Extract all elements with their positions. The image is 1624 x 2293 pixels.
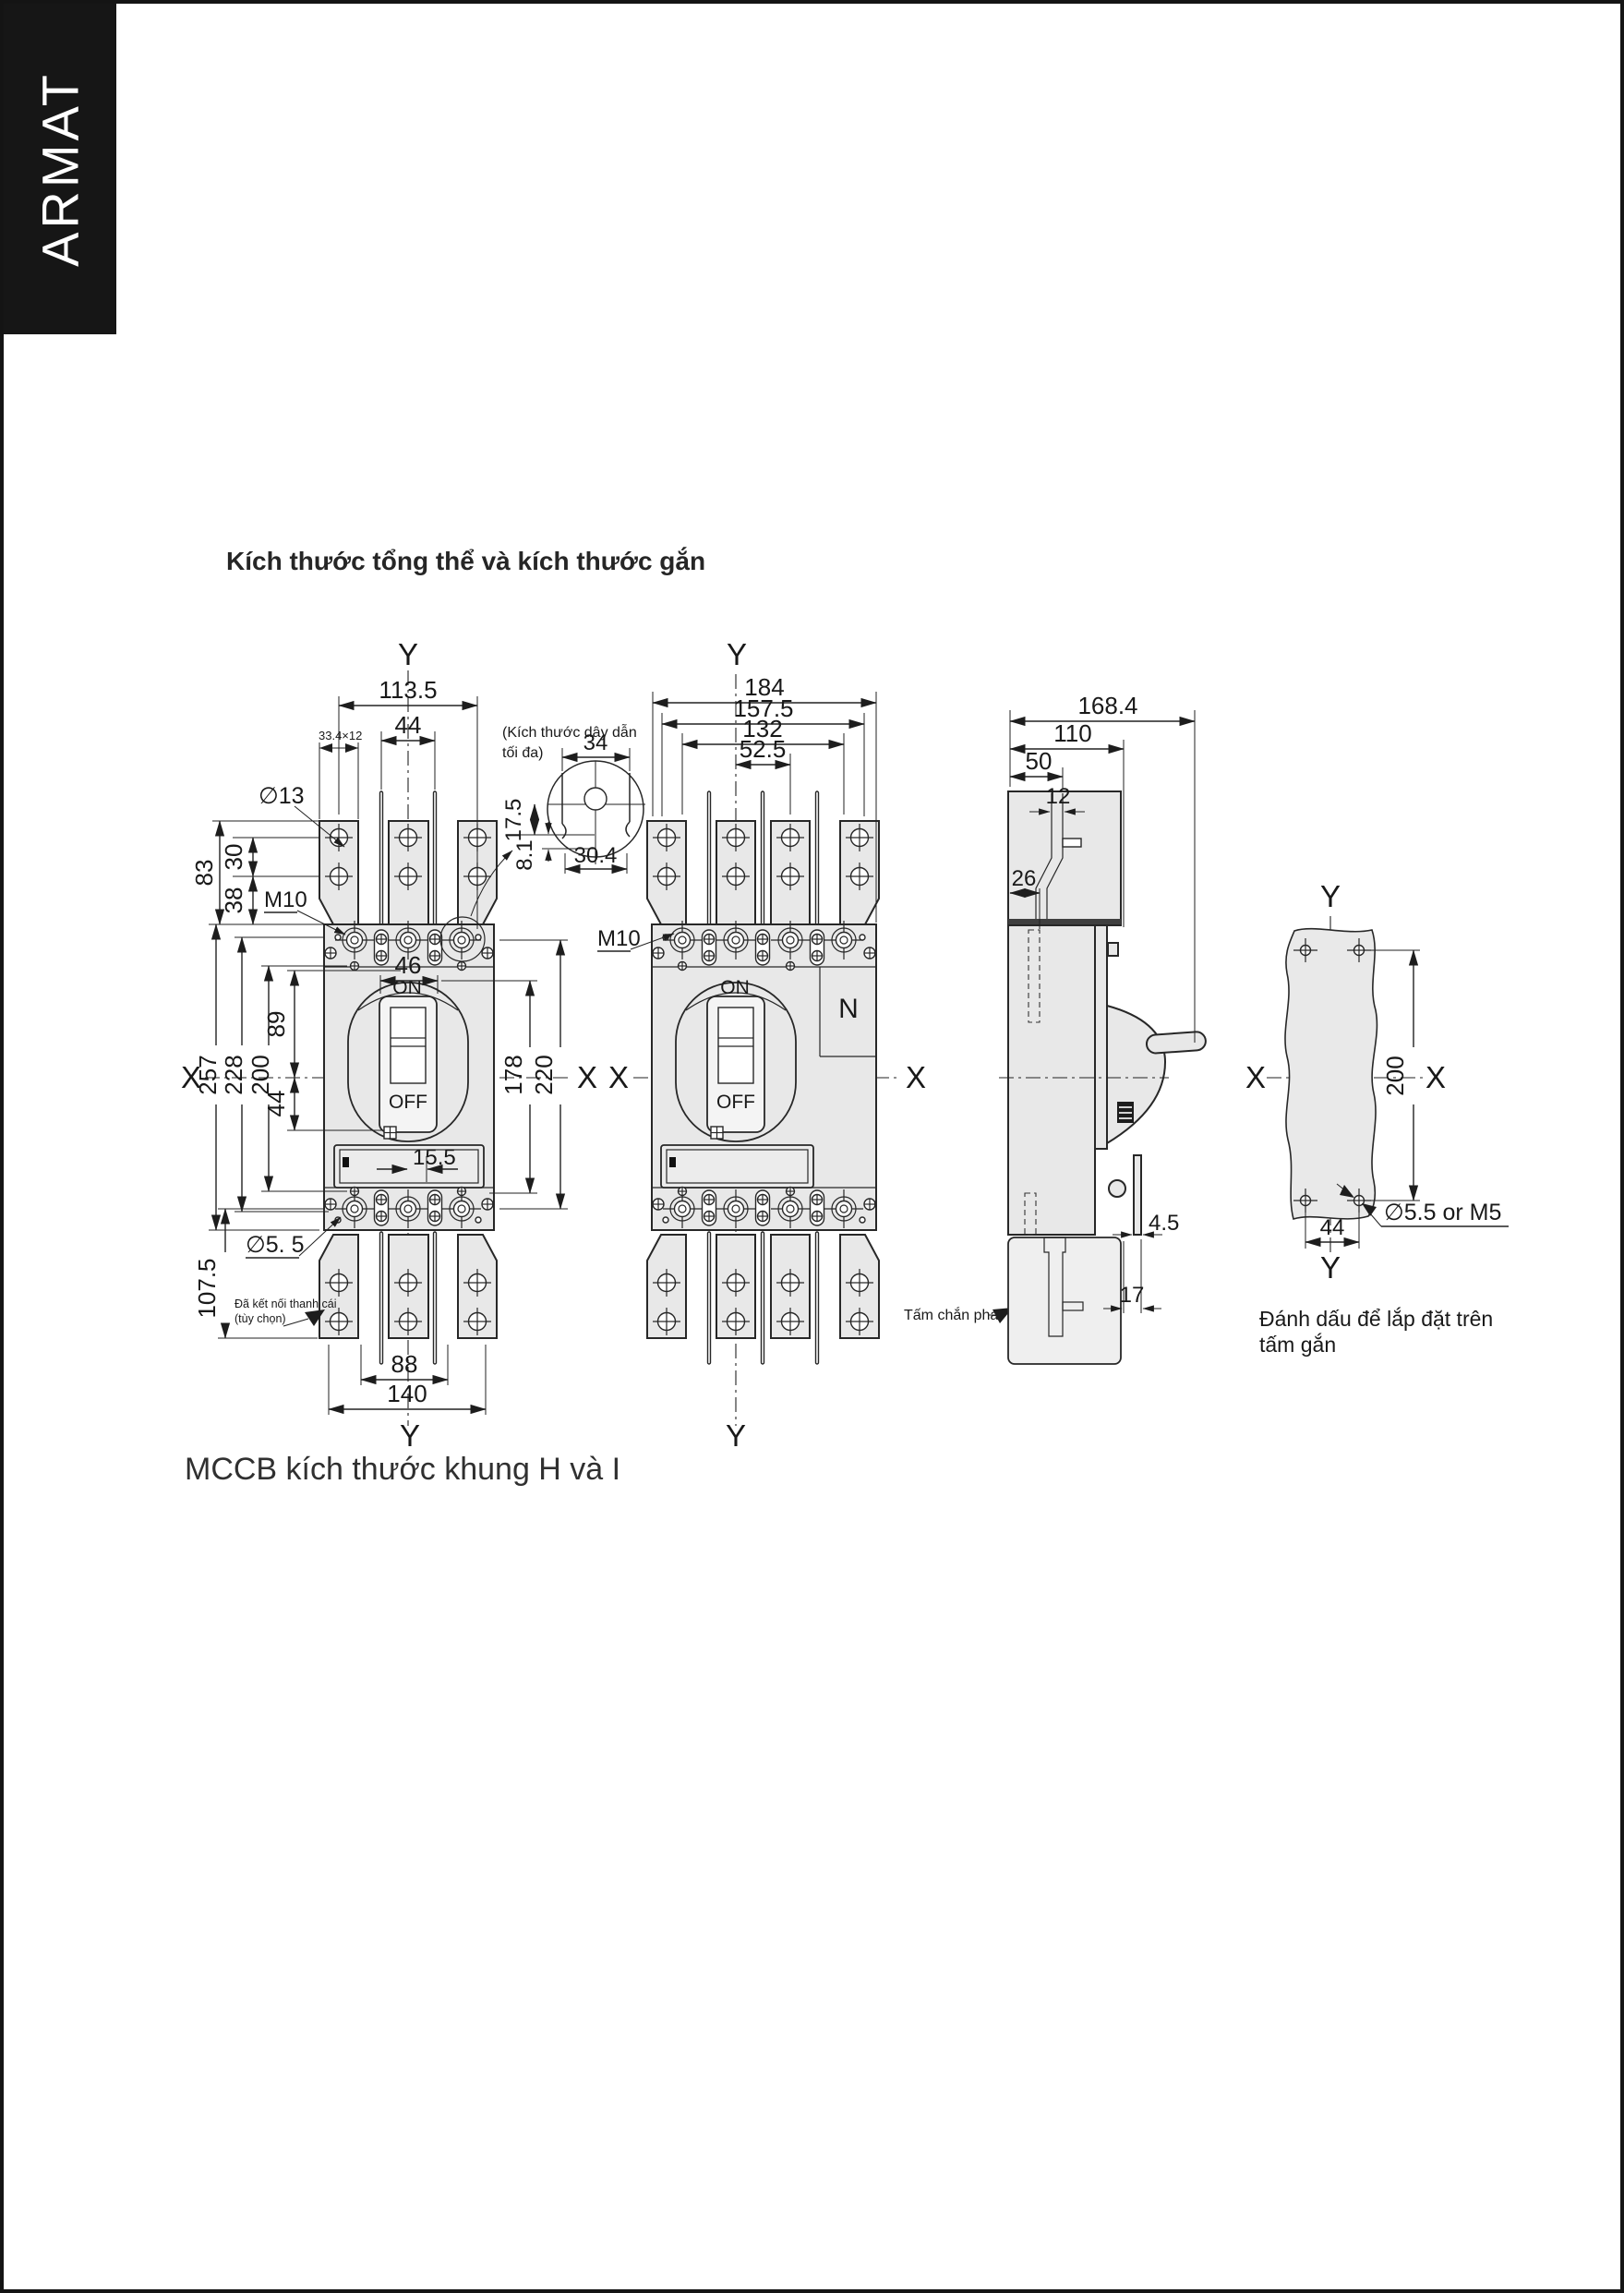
side-view: 168.4 110 50 12 26 4.5 17: [999, 692, 1207, 1364]
dim-plate-44: 44: [1320, 1215, 1345, 1240]
dim-178: 178: [499, 1055, 527, 1094]
dim-30-4: 30.4: [574, 843, 618, 868]
plate-hole-label: ∅5.5 or M5: [1384, 1200, 1501, 1225]
handle-side: [1146, 1032, 1206, 1054]
axis-x-left-4: X: [1245, 1060, 1266, 1094]
dim-plate-200: 200: [1381, 1056, 1409, 1095]
nameplate-window: [334, 1145, 484, 1188]
dim-52-5: 52.5: [740, 735, 787, 763]
dim-44-left: 44: [262, 1091, 290, 1117]
dim-107-5: 107.5: [193, 1258, 221, 1318]
neutral-label: N: [838, 994, 859, 1024]
nameplate-window-4p: [661, 1145, 813, 1188]
catalog-page: ARMAT Kích thước tổng thể và kích thước …: [0, 0, 1624, 2293]
dim-200: 200: [247, 1055, 274, 1094]
dim-17-5: 17.5: [501, 799, 526, 842]
dim-220: 220: [530, 1055, 558, 1094]
axis-x-left-1: X: [181, 1060, 201, 1094]
technical-drawing: ON OFF: [4, 4, 1624, 2293]
mounting-note-1: Đánh dấu để lắp đặt trên: [1259, 1307, 1493, 1331]
dim-168-4: 168.4: [1077, 692, 1137, 719]
axis-y-top-2: Y: [727, 637, 747, 671]
axis-y-top-4: Y: [1320, 879, 1341, 913]
phase-barrier-label: Tấm chắn pha: [904, 1306, 998, 1323]
dim-113-5: 113.5: [379, 676, 437, 704]
dim-8-1: 8.1: [512, 839, 537, 870]
axis-x-right-1: X: [577, 1060, 597, 1094]
axis-y-bottom-4: Y: [1320, 1250, 1341, 1285]
axis-x-right-4: X: [1426, 1060, 1446, 1094]
dim-dia13: ∅13: [259, 783, 305, 809]
axis-y-bottom-2: Y: [726, 1418, 746, 1453]
dim-89: 89: [262, 1011, 290, 1038]
dim-38: 38: [220, 887, 247, 914]
dim-slot: 33.4×12: [319, 729, 362, 742]
bottom-terminal-lugs: [319, 1235, 497, 1338]
dim-228: 228: [220, 1055, 247, 1094]
dim-12: 12: [1046, 784, 1071, 809]
dim-30: 30: [220, 844, 247, 871]
thread-label-left: M10: [264, 887, 307, 912]
conductor-detail-view: (Kích thước dây dẫn tối đa) 34 17.5 8.1 …: [501, 723, 645, 874]
dim-15-5: 15.5: [413, 1145, 456, 1170]
mounting-plate-view: 200 44 ∅5.5 or M5 Y Y X X Đánh dấu để lắ…: [1245, 879, 1509, 1357]
phase-barrier-plate: [1008, 1237, 1121, 1364]
axis-x-right-2: X: [906, 1060, 926, 1094]
dim-110: 110: [1053, 719, 1091, 747]
dim-dia5-5: ∅5. 5: [246, 1232, 304, 1258]
busbar-note-2: (tùy chọn): [235, 1312, 286, 1325]
conductor-note-1: (Kích thước dây dẫn: [502, 723, 637, 741]
conductor-note-2: tối đa): [502, 745, 543, 761]
dim-140: 140: [387, 1380, 427, 1407]
off-label: OFF: [389, 1092, 427, 1113]
top-terminal-lugs: [319, 821, 497, 924]
axis-x-left-2: X: [608, 1060, 629, 1094]
off-label-4p: OFF: [716, 1092, 755, 1113]
dim-26: 26: [1012, 866, 1037, 891]
toggle-dome-side: [1107, 1006, 1165, 1143]
axis-y-bottom-1: Y: [400, 1418, 420, 1453]
dim-50: 50: [1026, 747, 1053, 775]
mounting-note-2: tấm gắn: [1259, 1333, 1336, 1357]
dim-88: 88: [391, 1350, 418, 1378]
dim-17: 17: [1120, 1283, 1145, 1308]
dim-44-top: 44: [395, 711, 422, 739]
thread-label-4p: M10: [597, 926, 641, 951]
on-label-4p: ON: [720, 977, 750, 998]
mounting-plate: [1285, 929, 1377, 1219]
dim-83: 83: [190, 860, 218, 887]
breaker-body-side: [1008, 925, 1095, 1235]
front-view-4pole: N ON OFF: [597, 637, 1013, 1453]
dim-34: 34: [583, 730, 608, 755]
axis-y-top-1: Y: [398, 637, 418, 671]
dim-46: 46: [395, 951, 422, 979]
dim-4-5: 4.5: [1149, 1211, 1179, 1236]
busbar-note-1: Đã kết nối thanh cái: [235, 1297, 337, 1310]
